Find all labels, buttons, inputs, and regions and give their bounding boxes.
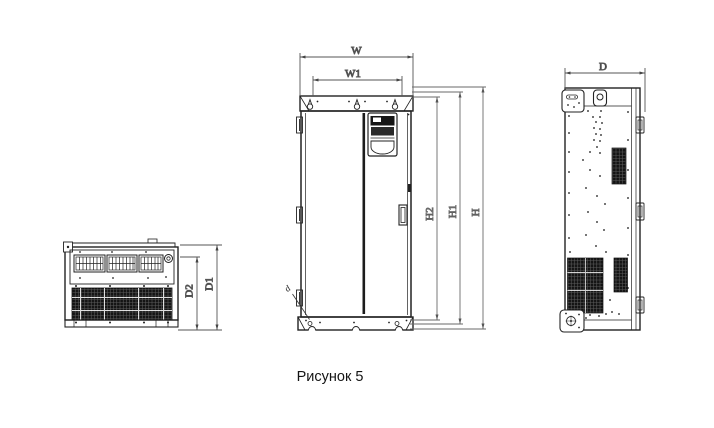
- side-grille-lower: [614, 258, 628, 292]
- vent-mesh: [72, 288, 172, 320]
- door-inner-edges: [306, 113, 408, 315]
- dim-label-h: H: [470, 208, 482, 216]
- terminal-grille: [74, 255, 105, 272]
- door-edge-lines: [632, 88, 637, 330]
- mounting-hole: [354, 100, 359, 110]
- terminal-grille: [139, 255, 163, 272]
- dim-label-depth: D: [599, 61, 607, 73]
- top-tab: [148, 239, 157, 243]
- side-grille-upper: [612, 148, 626, 184]
- knob: [165, 255, 173, 263]
- latch-tick: [408, 184, 412, 192]
- dim-label-w: W: [351, 45, 362, 57]
- foot-notch: [353, 327, 360, 331]
- dim-h2: H2: [410, 97, 440, 320]
- keypad-lower-face: [371, 141, 394, 154]
- dim-h1: H1: [410, 92, 463, 324]
- dim-label-d: d: [283, 283, 292, 294]
- dim-label-d2: D2: [184, 284, 196, 297]
- terminal-grille: [107, 255, 137, 272]
- screw-dot: [67, 246, 69, 248]
- keypad: [368, 113, 397, 156]
- foot-notch: [309, 327, 316, 331]
- side-view: [560, 88, 644, 332]
- mounting-hole: [392, 100, 397, 110]
- base-strip: [65, 320, 178, 327]
- dim-label-d1: D1: [204, 277, 216, 290]
- engineering-drawing: D2 D1: [0, 0, 714, 428]
- dim-w1: W1: [313, 68, 402, 96]
- mount-bracket-bottom: [560, 310, 584, 332]
- mounting-hole: [307, 100, 312, 110]
- keypad-screen: [371, 127, 394, 136]
- front-view: [297, 96, 414, 331]
- lifting-lug: [594, 90, 607, 106]
- foot-notch: [396, 327, 403, 331]
- figure-canvas: D2 D1: [0, 0, 714, 428]
- top-view: [64, 239, 179, 327]
- dim-d2: D2: [178, 257, 222, 330]
- door-handle: [399, 205, 407, 225]
- figure-caption: Рисунок 5: [250, 369, 410, 385]
- base-feet: [74, 320, 168, 327]
- dim-label-h1: H1: [447, 205, 459, 218]
- dim-label-h2: H2: [424, 207, 436, 220]
- door-seam: [363, 113, 366, 314]
- cabinet-body: [301, 111, 411, 317]
- dim-label-w1: W1: [345, 68, 361, 80]
- mount-bracket-top: [562, 90, 584, 112]
- base-dots: [305, 320, 407, 324]
